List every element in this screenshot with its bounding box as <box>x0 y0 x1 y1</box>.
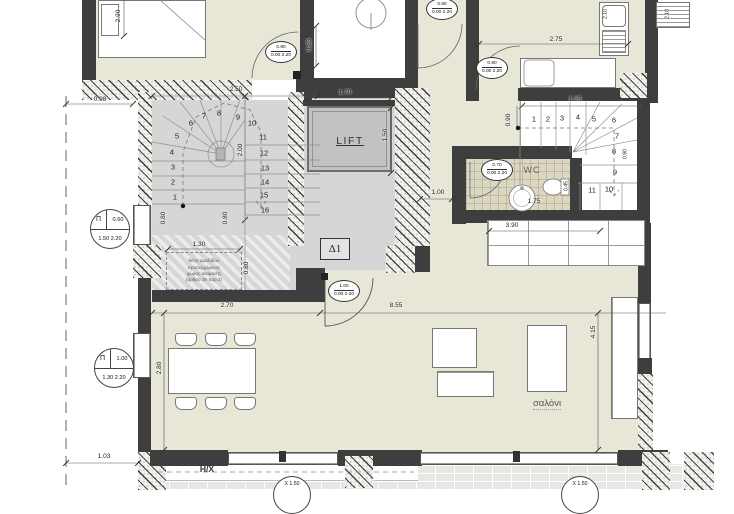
stair-step-number: 7 <box>615 132 619 140</box>
dimension-label: 0.45 <box>564 181 569 191</box>
window-size-tag: Π1.001.30 2.20 <box>94 348 134 388</box>
window-width: 0.60 <box>107 217 129 223</box>
dimension-label: 2.00 <box>238 144 245 157</box>
stair-step-number: 4 <box>576 113 580 121</box>
stair-step-number: 10 <box>248 119 256 127</box>
stair-step-number: 9 <box>236 113 240 121</box>
stair-step-number: 10 <box>605 185 613 193</box>
stair-step-number: 1 <box>173 193 177 201</box>
window-size-tag: Π0.601.50 2.20 <box>90 209 130 249</box>
stair-step-number: 11 <box>588 186 596 194</box>
door-size-tag: 0.800.00 2.20 <box>426 0 458 20</box>
dimension-label: 1.75 <box>528 199 541 206</box>
hx-label: Η/Χ <box>200 464 214 474</box>
dimension-label: 2.10 <box>603 9 608 19</box>
dimension-label: 0.90 <box>506 114 513 127</box>
door-size-tag: 1.000.00 2.20 <box>328 280 360 302</box>
stair-step-number: 13 <box>261 164 269 172</box>
dimension-label: 2.70 <box>221 303 234 310</box>
lift-label: LIFT <box>336 135 364 147</box>
floor-plan-canvas: { "labels": { "lift": "LIFT", "wc": "WC"… <box>0 0 734 490</box>
wc-label: WC <box>524 165 541 175</box>
door-heights: 0.00 2.20 <box>482 67 502 75</box>
label-layer: LIFT WC σαλόνι Η/Χ υπνοδωμάτιο Δ1 θέση α… <box>0 0 734 490</box>
window-symbol: Π <box>95 349 111 368</box>
stair-step-number: 1 <box>532 115 536 123</box>
door-width: 1.00 <box>339 284 348 291</box>
window-heights: 1.50 2.20 <box>91 230 129 247</box>
dimension-label: 4.15 <box>591 326 598 339</box>
door-size-tag: 0.700.00 2.20 <box>481 159 513 181</box>
dimension-label: 1.30 <box>193 242 206 249</box>
door-heights: 0.00 2.20 <box>334 290 354 298</box>
door-heights: 0.00 2.20 <box>432 8 452 16</box>
stair-step-number: 2 <box>171 178 175 186</box>
dimension-label: 1.00 <box>432 190 445 197</box>
opening-size-tag-clipped: Χ 1.50 <box>273 476 311 514</box>
stair-step-number: 5 <box>592 115 596 123</box>
stair-step-number: 2 <box>546 115 550 123</box>
stair-step-number: 8 <box>217 109 221 117</box>
dimension-label: 3.90 <box>506 223 519 230</box>
stair-step-number: 8 <box>612 147 616 155</box>
stair-step-number: 6 <box>189 119 193 127</box>
window-symbol: Π <box>91 210 107 229</box>
dimension-label: 1.95 <box>569 97 582 104</box>
door-size-tag: 0.800.00 2.20 <box>476 57 508 79</box>
note-line: (άρθρο 26 παρ.2) <box>186 277 222 283</box>
dimension-label: 1.03 <box>98 454 111 461</box>
dimension-label: 2.75 <box>550 37 563 44</box>
entrance-door-tag: Δ1 <box>320 238 350 260</box>
door-heights: 0.00 2.20 <box>487 169 507 177</box>
window-width: 1.00 <box>111 356 133 362</box>
opening-size-tag-clipped: Χ 1.50 <box>561 476 599 514</box>
bedroom-label-clipped: υπνοδωμάτιο <box>199 0 238 1</box>
dimension-label: 2.90 <box>116 10 123 23</box>
door-heights: 0.00 2.20 <box>271 51 291 59</box>
door-width: 0.80 <box>487 61 496 68</box>
door-width: 0.80 <box>437 2 446 9</box>
dimension-label: 8.55 <box>390 303 403 310</box>
stair-step-number: 6 <box>612 116 616 124</box>
dimension-label: 2.10 <box>665 9 670 19</box>
opening-tag-text: Χ 1.50 <box>573 481 588 487</box>
dimension-label: 0.80 <box>161 212 168 225</box>
stair-step-number: 11 <box>259 133 267 141</box>
stair-step-number: 16 <box>261 206 269 214</box>
stair-step-number: 5 <box>175 132 179 140</box>
dimension-label: 2.50 <box>230 87 243 94</box>
stair-step-number: 12 <box>260 149 268 157</box>
entrance-door-tag-text: Δ1 <box>329 243 342 255</box>
stair-step-number: 7 <box>202 112 206 120</box>
window-tag-row: Π1.00 <box>95 349 133 369</box>
window-tag-row: Π0.60 <box>91 210 129 230</box>
opening-tag-text: Χ 1.50 <box>285 481 300 487</box>
stair-step-number: 14 <box>261 178 269 186</box>
stair-step-number: 9 <box>613 168 617 176</box>
door-size-tag: 0.800.00 2.20 <box>265 41 297 63</box>
stair-step-number: 15 <box>260 191 268 199</box>
dimension-label: 0.80 <box>244 262 251 275</box>
living-room-label: σαλόνι <box>533 398 561 410</box>
dimension-label: 1.50 <box>383 129 390 142</box>
dimension-label: 0.90 <box>623 149 628 159</box>
dimension-label: 2.80 <box>157 362 164 375</box>
dimension-label: 0.85 <box>307 39 314 52</box>
stair-step-number: 3 <box>560 114 564 122</box>
door-width: 0.80 <box>276 45 285 52</box>
door-width: 0.70 <box>492 163 501 170</box>
window-heights: 1.30 2.20 <box>95 369 133 386</box>
dimension-label: 0.80 <box>223 212 230 225</box>
stair-step-number: 3 <box>171 163 175 171</box>
wheelchair-waiting-note: θέση αμαξιδίουπροσερχόμενοςχώρος αναμονή… <box>166 252 242 290</box>
dimension-label: 1.70 <box>339 90 352 97</box>
dimension-label: 0.98 <box>94 97 107 104</box>
stair-step-number: 4 <box>170 148 174 156</box>
